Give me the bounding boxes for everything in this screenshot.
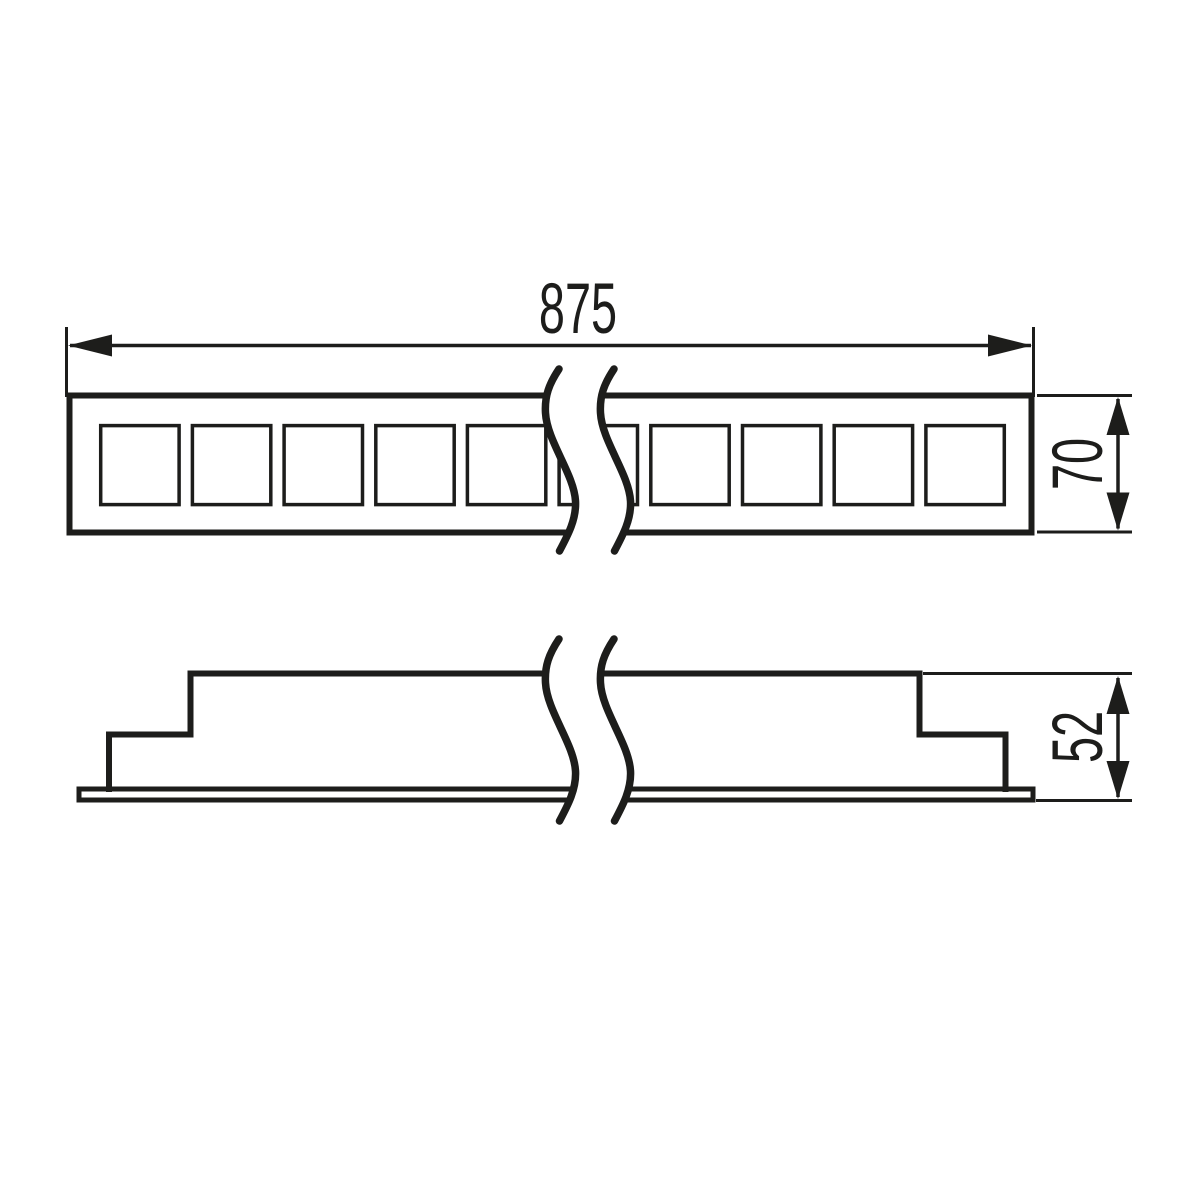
break-symbol-side-view <box>545 639 630 821</box>
cutout-square <box>101 426 179 505</box>
cutout-square <box>376 426 454 505</box>
arrowhead-down-icon <box>1107 761 1130 799</box>
technical-drawing-page: 875 70 52 <box>0 0 1200 1200</box>
cutout-square <box>284 426 362 505</box>
side-view <box>79 639 1033 821</box>
cutout-square <box>743 426 821 505</box>
side-view-flange <box>79 789 1033 800</box>
dimension-depth-value: 52 <box>1038 711 1117 763</box>
dimension-height-70: 70 <box>1037 396 1132 533</box>
cutout-square <box>926 426 1004 505</box>
cutout-square <box>651 426 729 505</box>
arrowhead-up-icon <box>1107 397 1130 435</box>
luminaire-dimension-drawing: 875 70 52 <box>0 0 1200 1200</box>
arrowhead-down-icon <box>1107 493 1130 531</box>
dimension-height-value: 70 <box>1038 438 1117 490</box>
cutout-square <box>192 426 270 505</box>
cutout-square <box>467 426 545 505</box>
dimension-width-value: 875 <box>539 269 617 348</box>
cutout-square <box>834 426 912 505</box>
top-view <box>70 369 1032 551</box>
arrowhead-left-icon <box>68 335 112 357</box>
arrowhead-up-icon <box>1107 676 1130 714</box>
arrowhead-right-icon <box>988 335 1032 357</box>
